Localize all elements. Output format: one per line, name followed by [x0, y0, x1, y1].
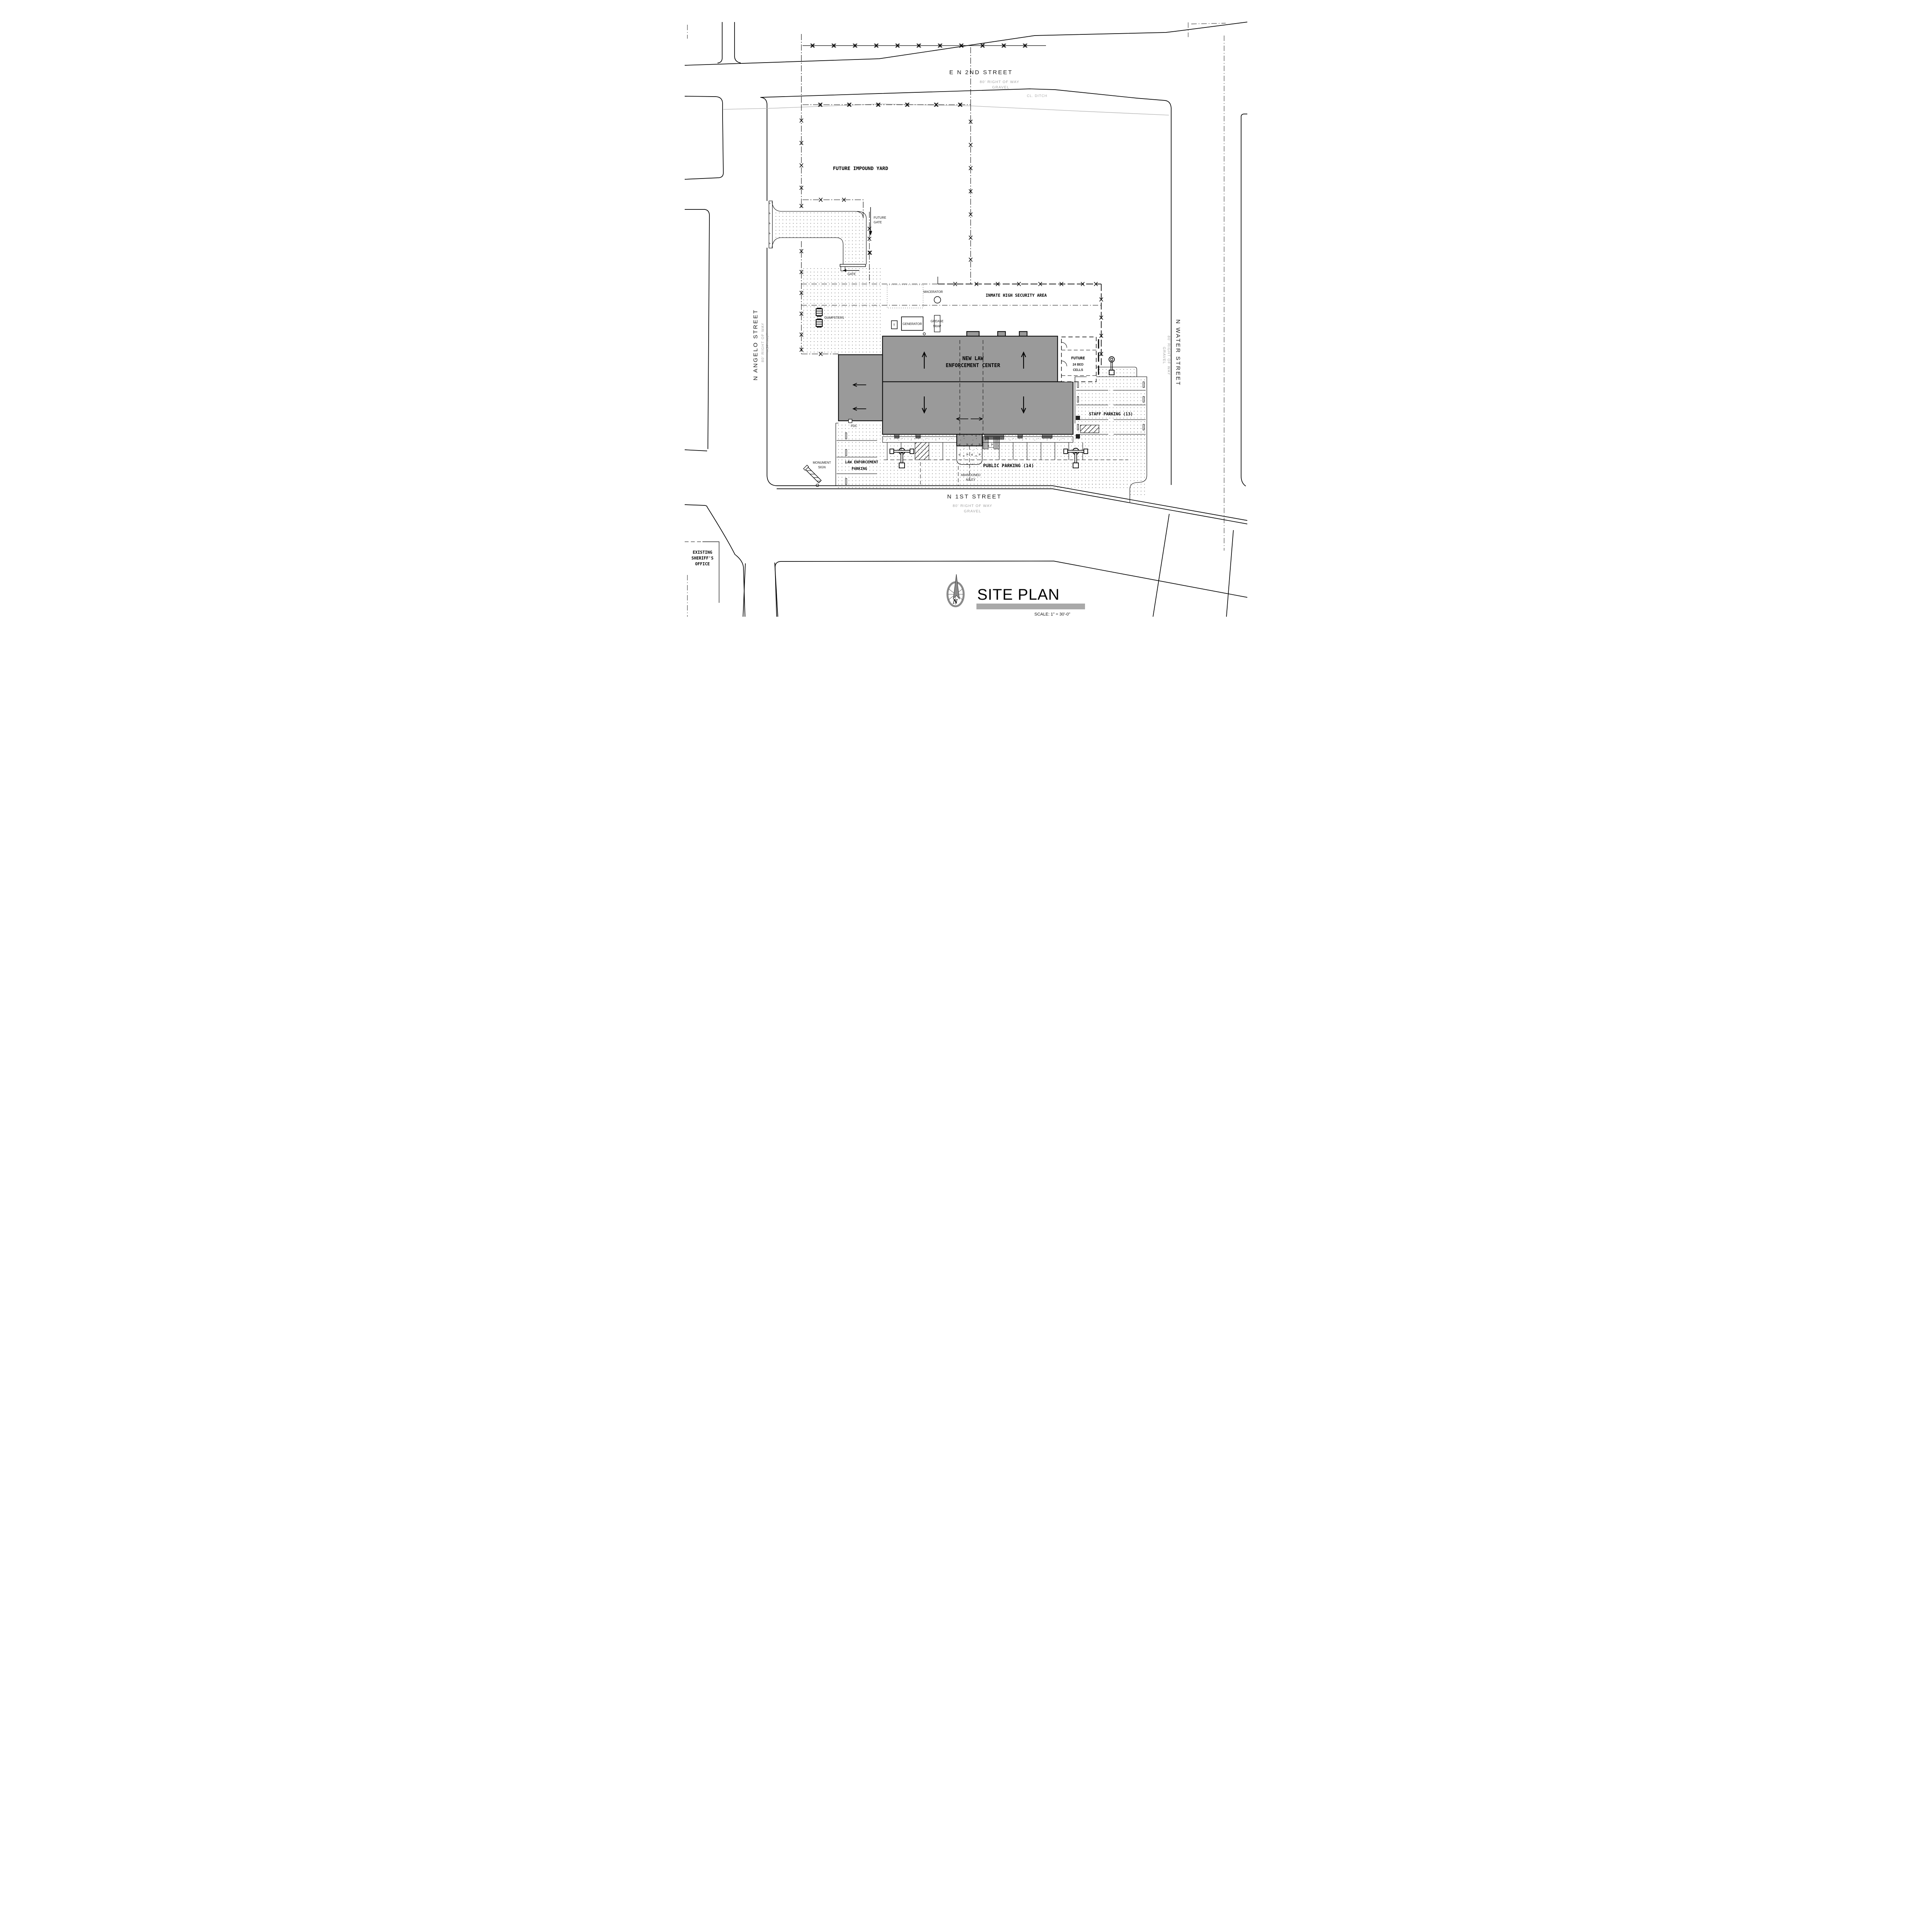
n1st-surface: GRAVEL [964, 509, 981, 514]
n2nd-surface: GRAVEL [992, 85, 1009, 90]
impound-driveway [772, 212, 864, 238]
impound-sw-fence [803, 200, 863, 212]
property-dash-verticals [801, 34, 971, 105]
angelo-west-edge [685, 116, 723, 449]
crosswalk-stripe [983, 437, 988, 449]
grease-trap-label-1: GREASE [930, 320, 943, 323]
angelo-south-edges [743, 563, 778, 617]
sheriff-label-3: OFFICE [695, 562, 710, 566]
ditch-label: CL. DITCH [1027, 94, 1047, 98]
n1st-row: 80' RIGHT OF WAY [953, 504, 993, 508]
future-gate-label-2: GATE [874, 221, 882, 224]
bollard-pad [1076, 416, 1080, 420]
monument-label-1: MONUMENT [813, 461, 831, 464]
public-parking-label: PUBLIC PARKING (14) [983, 463, 1034, 468]
water-east-south [1226, 530, 1233, 617]
fdc-label: FDC [851, 424, 857, 428]
roof-vent [1019, 332, 1027, 336]
angelo-north-stub [718, 22, 741, 63]
cells-label-3: CELLS [1073, 368, 1083, 372]
sheriff-label-2: SHERIFF'S [692, 556, 714, 561]
angelo-surface: ASPHALT [765, 333, 770, 352]
ditch-line [723, 104, 1169, 115]
north-compass-icon: N [947, 574, 964, 606]
secure-yard [803, 266, 883, 354]
hatched-walk [1080, 425, 1099, 433]
building-label-2: ENFORCEMENT CENTER [946, 363, 1000, 369]
water-surface: GRAVEL [1162, 347, 1166, 364]
generator-label: GENERATOR [903, 322, 922, 326]
dumpster-icon [816, 319, 822, 327]
site-plan-sheet: E N 2ND STREET 80' RIGHT OF WAY GRAVEL C… [685, 0, 1247, 617]
cells-label-1: FUTURE [1071, 356, 1085, 361]
fdc-marker [849, 419, 852, 423]
block-corner-ticks [687, 22, 1226, 617]
sheet-title: SITE PLAN [977, 586, 1060, 603]
gate-label: GATE [847, 272, 855, 276]
street-name-angelo: N ANGELO STREET [752, 309, 759, 380]
crosswalk-stripe [994, 437, 999, 449]
n2nd-south-west-corner [685, 96, 723, 116]
utility-riser [923, 333, 925, 335]
east-block-edge [1241, 114, 1247, 486]
macerator-symbol [934, 297, 941, 303]
building-label-1: NEW LAW [963, 356, 984, 362]
roof-vent [967, 332, 979, 336]
water-row: 80' RIGHT OF WAY [1167, 336, 1171, 376]
roof-vent [998, 332, 1005, 336]
n1st-north-edge-a [777, 486, 1247, 520]
site-plan-drawing: E N 2ND STREET 80' RIGHT OF WAY GRAVEL C… [685, 0, 1247, 617]
bollard-pad [1076, 434, 1080, 439]
staff-parking-area [1075, 377, 1147, 444]
street-name-water: N WATER STREET [1175, 320, 1181, 386]
grease-trap-box [934, 315, 940, 332]
le-parking-area [836, 423, 882, 488]
macerator-label: MACERATOR [923, 290, 943, 294]
building-south-wing [883, 382, 1073, 434]
labels: E N 2ND STREET 80' RIGHT OF WAY GRAVEL C… [692, 69, 1181, 566]
grease-trap-label-2: TRAP [933, 325, 941, 328]
sidewalk-west [883, 437, 957, 442]
dumpsters-label: DUMPSTERS [825, 316, 844, 320]
street-name-n1st: N 1ST STREET [947, 493, 1002, 500]
monument-label-2: SIGN [818, 466, 826, 469]
dumpster-icon [816, 308, 822, 316]
gate-bar [840, 264, 866, 267]
driveway-apron-bar [769, 201, 772, 248]
angelo-east-edge [760, 97, 777, 486]
impound-yard-label: FUTURE IMPOUND YARD [833, 165, 888, 171]
accessible-stall [915, 442, 929, 460]
scale-note: SCALE: 1" = 30'-0" [1034, 612, 1070, 617]
staff-parking-label: STAFF PARKING (13) [1089, 412, 1133, 417]
street-lines [685, 22, 1247, 617]
street-name-n2nd: E N 2ND STREET [949, 69, 1013, 76]
water-west-south [1153, 514, 1169, 617]
alley-label-1: ABANDONED [961, 473, 981, 477]
walk-pad [988, 437, 994, 447]
alley-label-2: ALLEY [966, 478, 976, 481]
sheriff-label-1: EXISTING [693, 550, 713, 555]
n1st-north-edge-b [777, 489, 1247, 524]
angelo-sw-corner [707, 507, 745, 617]
n2nd-north-edge [685, 22, 1247, 65]
cells-label-2: 24 BED [1073, 363, 1083, 366]
angelo-row: 80' RIGHT OF WAY [761, 323, 765, 362]
n2nd-row: 80' RIGHT OF WAY [980, 80, 1020, 84]
building-west-wing [838, 355, 883, 421]
le-parking-label-1: LAW ENFORCEMENT [845, 460, 878, 464]
title-block: N SITE PLAN SCALE: 1" = 30'-0" [947, 574, 1085, 617]
compass-n-letter: N [952, 598, 958, 605]
inmate-area-label: INMATE HIGH SECURITY AREA [986, 293, 1047, 298]
gate-lane [843, 238, 866, 265]
title-underline-bar [976, 604, 1085, 609]
future-gate-label-1: FUTURE [874, 216, 886, 219]
transformer-label: T [893, 323, 895, 327]
equipment-pad [887, 285, 923, 308]
west-stub-street [685, 450, 707, 507]
le-parking-label-2: PARKING [852, 467, 867, 471]
